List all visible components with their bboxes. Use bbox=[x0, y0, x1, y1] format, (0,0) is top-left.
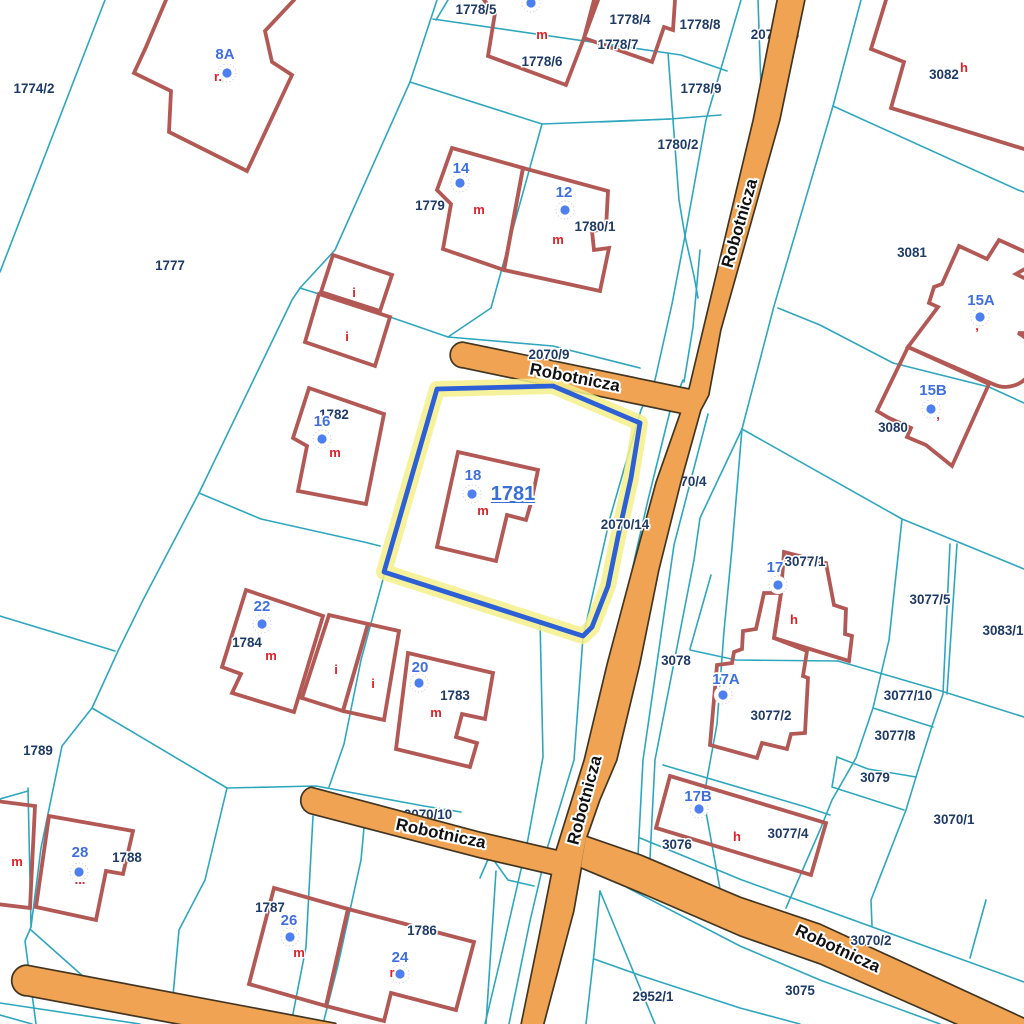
svg-text:3077/10: 3077/10 bbox=[884, 688, 932, 703]
svg-text:3079: 3079 bbox=[860, 770, 890, 785]
svg-text:26: 26 bbox=[281, 912, 298, 929]
svg-text:m: m bbox=[473, 202, 485, 217]
svg-text:17B: 17B bbox=[684, 788, 712, 805]
svg-text:r: r bbox=[389, 965, 394, 980]
svg-text:3070/1: 3070/1 bbox=[934, 812, 976, 827]
svg-text:1786: 1786 bbox=[407, 923, 437, 938]
svg-text:1781: 1781 bbox=[491, 483, 536, 505]
svg-text:3082: 3082 bbox=[929, 67, 959, 82]
svg-text:1780/1: 1780/1 bbox=[575, 219, 617, 234]
svg-text:3077/1: 3077/1 bbox=[785, 554, 827, 569]
svg-text:m: m bbox=[477, 503, 489, 518]
svg-text:1789: 1789 bbox=[23, 743, 53, 758]
svg-text:m: m bbox=[11, 854, 23, 869]
svg-text:3075: 3075 bbox=[785, 983, 815, 998]
svg-text:3077/5: 3077/5 bbox=[910, 592, 952, 607]
svg-text:1778/9: 1778/9 bbox=[681, 81, 722, 96]
svg-text:i: i bbox=[334, 662, 338, 677]
svg-text:12: 12 bbox=[556, 184, 573, 201]
svg-text:1777: 1777 bbox=[155, 258, 185, 273]
svg-text:20: 20 bbox=[412, 659, 429, 676]
svg-text:...: ... bbox=[75, 872, 86, 887]
svg-text:1774/2: 1774/2 bbox=[14, 81, 55, 96]
svg-text:15B: 15B bbox=[919, 382, 947, 399]
svg-text:14: 14 bbox=[453, 160, 470, 177]
svg-text:24: 24 bbox=[392, 949, 409, 966]
svg-text:1780/2: 1780/2 bbox=[658, 137, 699, 152]
svg-text:3080: 3080 bbox=[878, 420, 908, 435]
svg-text:17: 17 bbox=[767, 559, 784, 576]
svg-text:8A: 8A bbox=[215, 46, 234, 63]
svg-text:2070/14: 2070/14 bbox=[601, 517, 650, 532]
svg-text:2952/1: 2952/1 bbox=[633, 989, 675, 1004]
svg-text:22: 22 bbox=[254, 598, 271, 615]
svg-text:h: h bbox=[960, 60, 968, 75]
svg-text:3077/8: 3077/8 bbox=[875, 728, 917, 743]
svg-text:i: i bbox=[371, 676, 375, 691]
svg-text:1779: 1779 bbox=[415, 198, 445, 213]
svg-text:3083/1: 3083/1 bbox=[983, 623, 1024, 638]
svg-text:1778/6: 1778/6 bbox=[522, 54, 563, 69]
svg-text:,: , bbox=[975, 318, 979, 333]
svg-text:h: h bbox=[733, 829, 741, 844]
svg-text:16: 16 bbox=[314, 413, 331, 430]
svg-text:i: i bbox=[345, 329, 349, 344]
svg-text:15A: 15A bbox=[967, 292, 995, 309]
svg-text:1778/7: 1778/7 bbox=[598, 37, 639, 52]
svg-text:m: m bbox=[430, 705, 442, 720]
svg-text:i: i bbox=[352, 285, 356, 300]
svg-text:3077/2: 3077/2 bbox=[751, 708, 792, 723]
svg-text:m: m bbox=[265, 648, 277, 663]
svg-text:28: 28 bbox=[72, 844, 89, 861]
svg-text:m: m bbox=[552, 232, 564, 247]
svg-text:,: , bbox=[936, 407, 940, 422]
svg-text:r.: r. bbox=[214, 69, 222, 84]
svg-text:m: m bbox=[536, 27, 548, 42]
svg-text:3076: 3076 bbox=[662, 837, 692, 852]
svg-text:1778/5: 1778/5 bbox=[456, 2, 498, 17]
svg-text:3077/4: 3077/4 bbox=[768, 826, 810, 841]
svg-text:m: m bbox=[293, 945, 305, 960]
svg-text:1778/8: 1778/8 bbox=[680, 17, 722, 32]
svg-text:3078: 3078 bbox=[661, 653, 691, 668]
svg-text:h: h bbox=[790, 612, 798, 627]
svg-text:1788: 1788 bbox=[112, 850, 142, 865]
svg-text:3081: 3081 bbox=[897, 245, 927, 260]
svg-text:m: m bbox=[329, 445, 341, 460]
svg-text:1778/4: 1778/4 bbox=[610, 12, 652, 27]
svg-text:17A: 17A bbox=[712, 671, 740, 688]
svg-text:18: 18 bbox=[465, 467, 482, 484]
svg-text:1784: 1784 bbox=[232, 635, 262, 650]
svg-text:1783: 1783 bbox=[440, 688, 470, 703]
